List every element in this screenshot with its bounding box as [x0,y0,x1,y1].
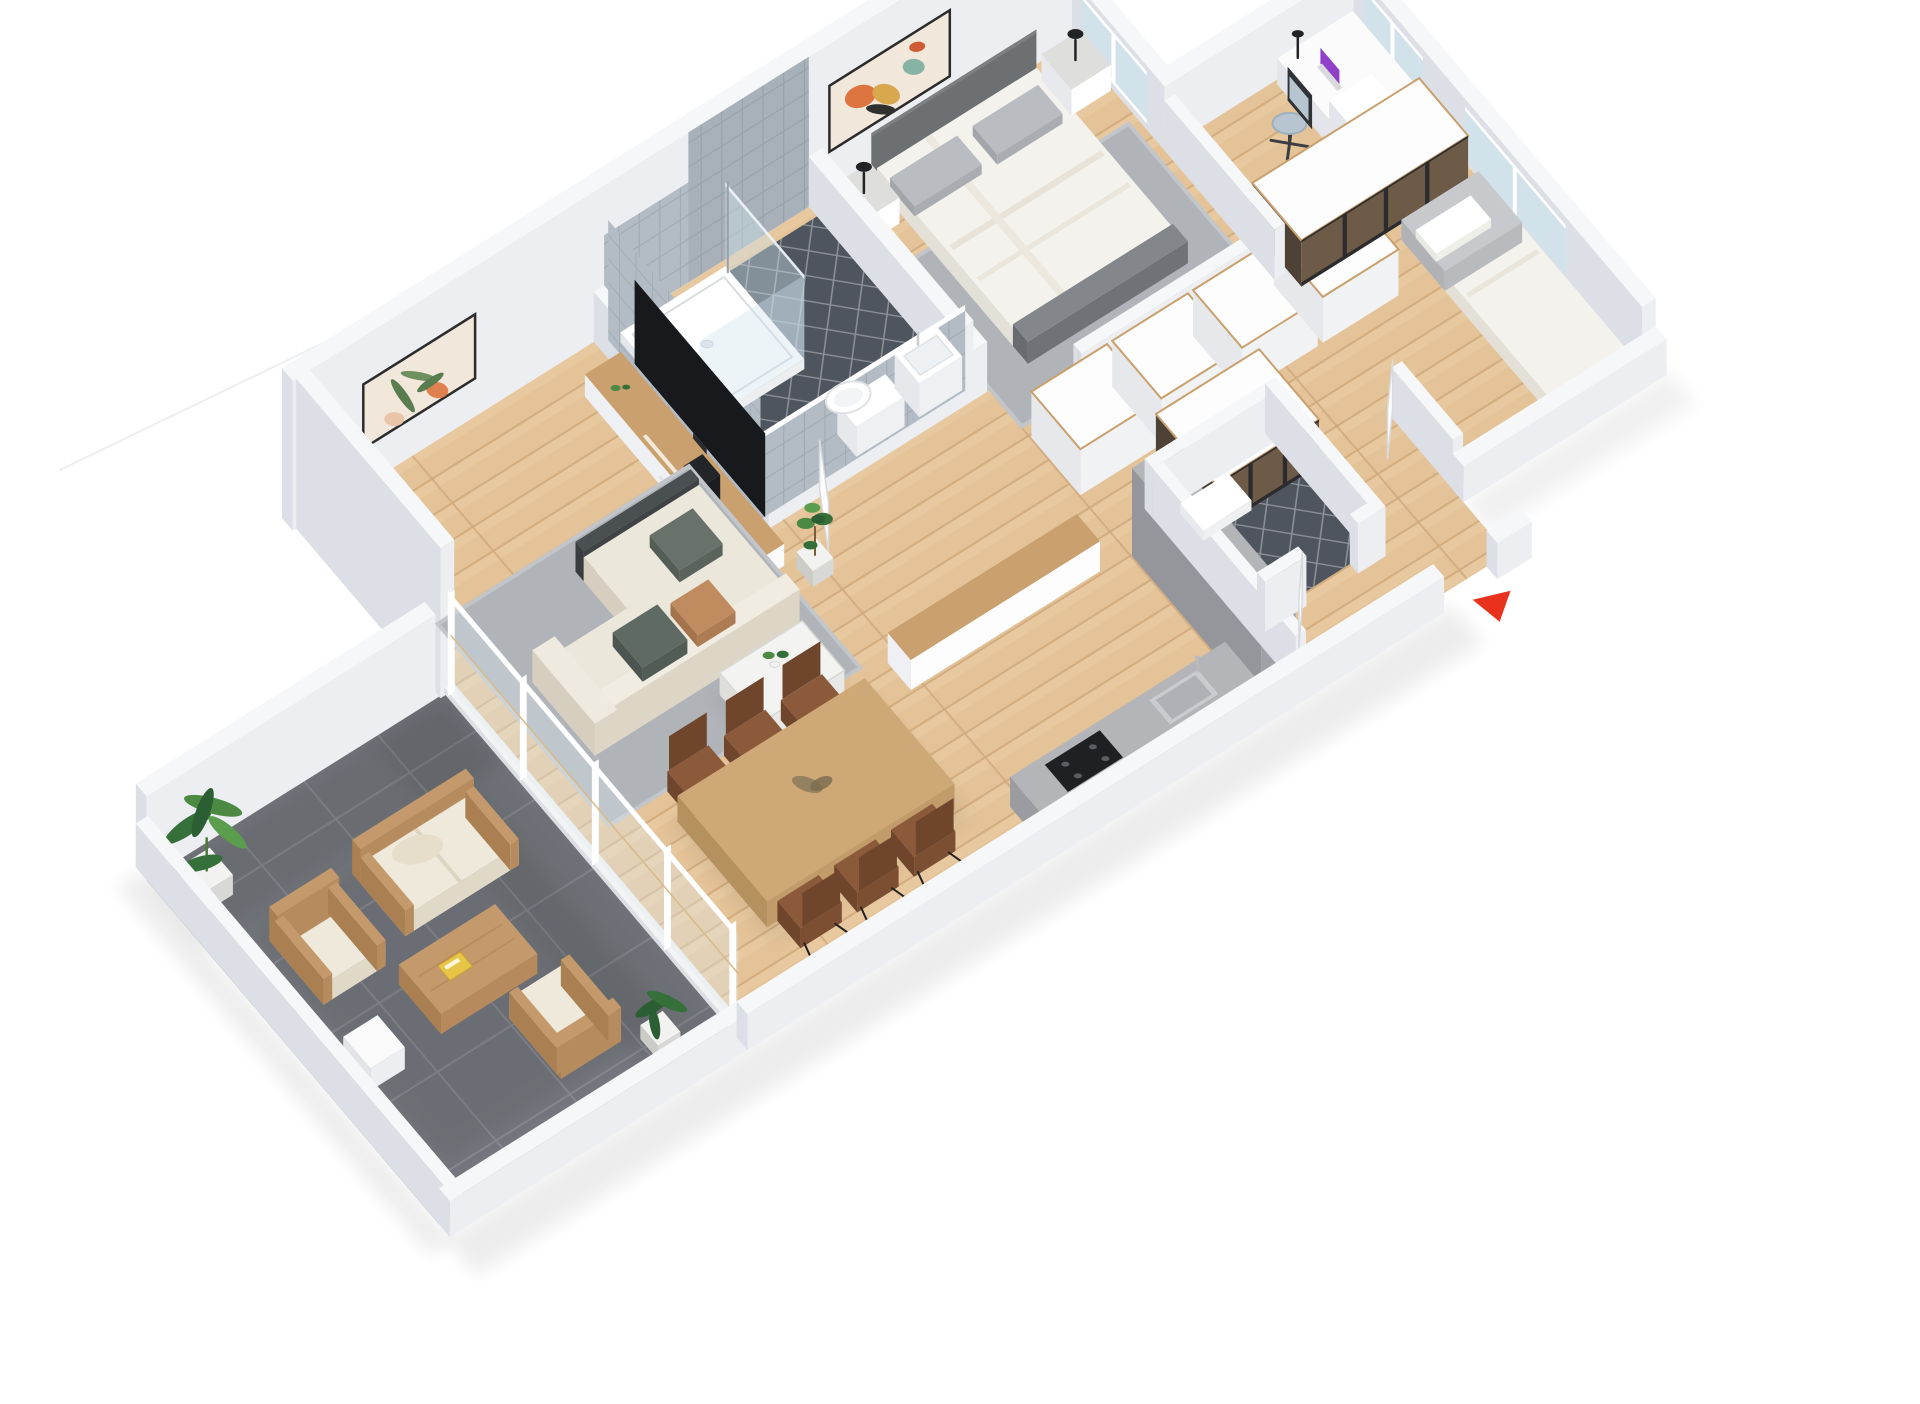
apartment-scene [60,0,1696,1274]
entrance-arrow-marker[interactable] [1473,591,1511,622]
floorplan-render [0,0,1920,1404]
floorplan-svg [0,0,1920,1404]
